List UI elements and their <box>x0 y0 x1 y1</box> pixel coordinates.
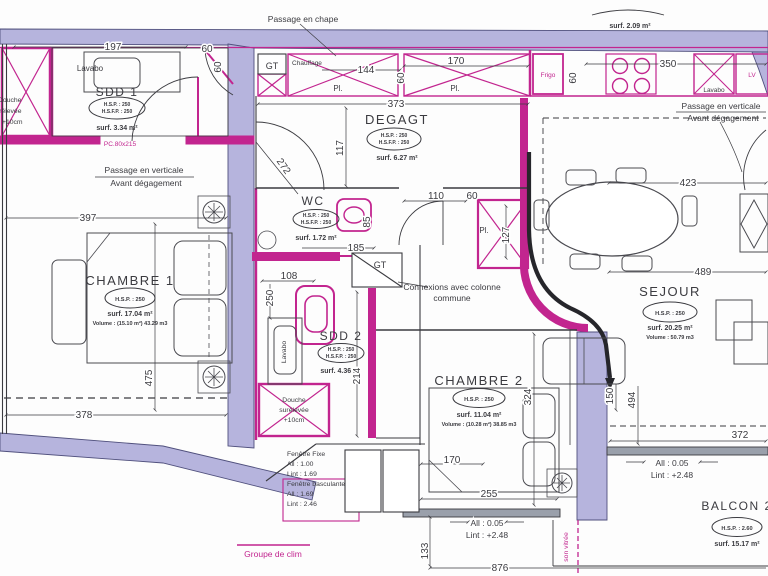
dim-108: 108 <box>281 271 298 282</box>
dim-272: 272 <box>274 157 293 177</box>
all-005-a: All : 0.05 <box>470 518 503 528</box>
douche-sdd1-l1: Douche <box>0 97 22 104</box>
lv-label: LV <box>748 72 756 79</box>
wall-bottom-diagonal <box>0 433 316 500</box>
dim-127: 127 <box>501 226 512 243</box>
dim-876: 876 <box>492 563 509 574</box>
room-name-balcon2: BALCON 2 <box>701 499 768 513</box>
fen-fixe: Fenêtre Fixe <box>287 451 325 458</box>
room-name-sdd2: SDD 2 <box>320 329 363 343</box>
lint-248-a: Lint : +2.48 <box>466 530 509 540</box>
dim-170b: 170 <box>444 455 461 466</box>
room-name-chambre2: CHAMBRE 2 <box>434 373 523 388</box>
chambre1-hsp: H.S.P. : 250 <box>115 297 145 303</box>
sdd2-hsfp: H.S.F.P. : 250 <box>326 354 357 360</box>
cabinet-squares <box>716 300 768 364</box>
chauffage-label: Chauffage <box>292 60 322 67</box>
dim-373: 373 <box>388 99 405 110</box>
dim-324: 324 <box>523 388 534 405</box>
wc-surf: surf. 1.72 m² <box>295 235 337 242</box>
curved-wall <box>524 260 588 328</box>
bed-chambre2 <box>429 388 559 492</box>
connexions-l2: commune <box>433 293 471 303</box>
ceiling-light-2 <box>198 361 230 393</box>
dim-150: 150 <box>605 387 616 404</box>
room-name-sdd1: SDD 1 <box>96 85 139 99</box>
pl-label-2: Pl. <box>450 84 459 93</box>
all-005-b: All : 0.05 <box>655 458 688 468</box>
chambre2-volume: Volume : (10.28 m²) 38.85 m3 <box>442 421 517 428</box>
dim-214: 214 <box>352 367 363 384</box>
door-arc-degagt <box>256 122 324 190</box>
door-arc-kitchen <box>744 130 766 190</box>
nightstand-chambre1 <box>52 260 86 344</box>
ceiling-light-chambre2 <box>547 469 577 497</box>
dim-423: 423 <box>680 178 697 189</box>
balcon2-hsp: H.S.P. : 2.60 <box>721 526 752 532</box>
dim-60c: 60 <box>396 72 407 84</box>
wc-hsp: H.S.P. : 250 <box>303 213 330 219</box>
lavabo-sdd2: Lavabo <box>281 341 288 364</box>
pl-label-1: Pl. <box>333 84 342 93</box>
sejour-surf: surf. 20.25 m² <box>647 325 693 332</box>
door-arc-chambre2 <box>399 201 443 245</box>
door-arc-sdd1 <box>132 77 198 141</box>
dim-185: 185 <box>348 243 365 254</box>
avant-degagement-right: Avant dégagement <box>687 113 759 123</box>
lint-248-b: Lint : +2.48 <box>651 470 694 480</box>
pl-label-3: Pl. <box>479 226 488 235</box>
dining-set <box>534 168 697 271</box>
dim-378: 378 <box>76 410 93 421</box>
lavabo-sdd1: Lavabo <box>77 64 104 73</box>
dim-60b: 60 <box>213 61 224 73</box>
sdd1-hsfp: H.S.F.P. : 250 <box>102 109 133 115</box>
dining-table <box>546 182 678 256</box>
room-name-chambre1: CHAMBRE 1 <box>85 273 174 288</box>
wall-right-column <box>577 332 607 520</box>
avant-degagement-left: Avant dégagement <box>110 178 182 188</box>
chambre2-hsp: H.S.P. : 250 <box>464 397 494 403</box>
sdd2-hsp: H.S.P. : 250 <box>328 347 355 353</box>
fen-fixe-all: All : 1.00 <box>287 461 314 468</box>
passage-chape: Passage en chape <box>268 14 339 24</box>
dim-60a: 60 <box>201 44 213 55</box>
douche-sdd2-l1: Douche <box>282 397 306 404</box>
dim-350: 350 <box>660 59 677 70</box>
fen-basc: Fenêtre basculante <box>287 481 345 488</box>
passage-verticale-right: Passage en verticale <box>682 101 761 111</box>
groupe-clim-label: Groupe de clim <box>244 549 302 559</box>
douche-sdd1-l2: surélevée <box>0 108 22 115</box>
balcon1-surf: surf. 2.09 m² <box>609 23 651 30</box>
dim-372: 372 <box>732 430 749 441</box>
wc-hsfp: H.S.F.P. : 250 <box>301 220 332 226</box>
armchair-sejour <box>740 194 768 252</box>
sdd1-door-ref: PC.80x215 <box>104 141 137 148</box>
window-frame-1 <box>345 450 381 512</box>
gt-label-top: GT <box>266 61 279 71</box>
dim-475: 475 <box>144 369 155 386</box>
douche-sdd2-l2: surélevée <box>279 407 309 414</box>
dim-144: 144 <box>358 65 375 76</box>
floor-plan-page: SDD 1 H.S.P. : 250 H.S.F.P. : 250 surf. … <box>0 0 768 576</box>
fen-basc-lint: Lint : 2.46 <box>287 501 317 508</box>
sdd1-surf: surf. 3.34 m² <box>96 125 138 132</box>
sofa-sejour <box>543 338 625 384</box>
dim-255: 255 <box>481 489 498 500</box>
chambre1-surf: surf. 17.04 m² <box>107 311 153 318</box>
room-name-degagt: DEGAGT <box>365 112 429 127</box>
lavabo-kitchen: Lavabo <box>703 87 725 94</box>
dim-397: 397 <box>80 213 97 224</box>
fen-basc-all: All : 1.69 <box>287 491 314 498</box>
sejour-volume: Volume : 50.79 m3 <box>646 335 694 341</box>
chambre2-surf: surf. 11.04 m² <box>457 412 502 419</box>
passage-verticale-left: Passage en verticale <box>105 165 184 175</box>
degagt-surf: surf. 6.27 m² <box>376 155 418 162</box>
dim-60e: 60 <box>466 191 478 202</box>
gt-label-mid: GT <box>374 260 387 270</box>
window-chambre2 <box>403 509 560 517</box>
bed-chambre1 <box>87 233 232 363</box>
ceiling-light-1 <box>198 196 230 228</box>
window-sejour <box>607 447 768 455</box>
cloison-vitree-label: son vitrée <box>563 532 570 562</box>
dim-170a: 170 <box>448 56 465 67</box>
fen-fixe-lint: Lint : 1.69 <box>287 471 317 478</box>
chambre1-volume: Volume : (15.10 m²) 43.29 m3 <box>93 320 168 327</box>
dim-60d: 60 <box>568 72 579 84</box>
degagt-hsp: H.S.P. : 250 <box>381 133 408 139</box>
douche-sdd1-l3: +10cm <box>2 119 23 126</box>
frigo-label: Frigo <box>541 72 556 79</box>
ceiling-light-wc <box>258 231 276 249</box>
floor-plan-drawing: SDD 1 H.S.P. : 250 H.S.F.P. : 250 surf. … <box>0 0 768 576</box>
dim-110: 110 <box>428 191 444 202</box>
sdd1-hsp: H.S.P. : 250 <box>104 102 131 108</box>
dim-117: 117 <box>335 140 346 156</box>
dim-494: 494 <box>627 391 638 408</box>
dim-250: 250 <box>265 289 276 306</box>
douche-sdd2-l3: +10cm <box>284 417 305 424</box>
balcon2-surf: surf. 15.17 m² <box>714 541 760 548</box>
degagt-hsfp: H.S.F.P. : 250 <box>379 140 410 146</box>
dim-197: 197 <box>105 42 122 53</box>
dim-133: 133 <box>420 542 431 559</box>
connexions-l1: Connexions avec colonne <box>403 282 501 292</box>
dim-489: 489 <box>695 267 712 278</box>
sejour-hsp: H.S.P. : 250 <box>655 311 685 317</box>
window-frame-2 <box>383 450 419 512</box>
room-name-sejour: SEJOUR <box>639 284 701 299</box>
room-name-wc: WC <box>302 194 325 208</box>
dim-85: 85 <box>362 216 373 228</box>
